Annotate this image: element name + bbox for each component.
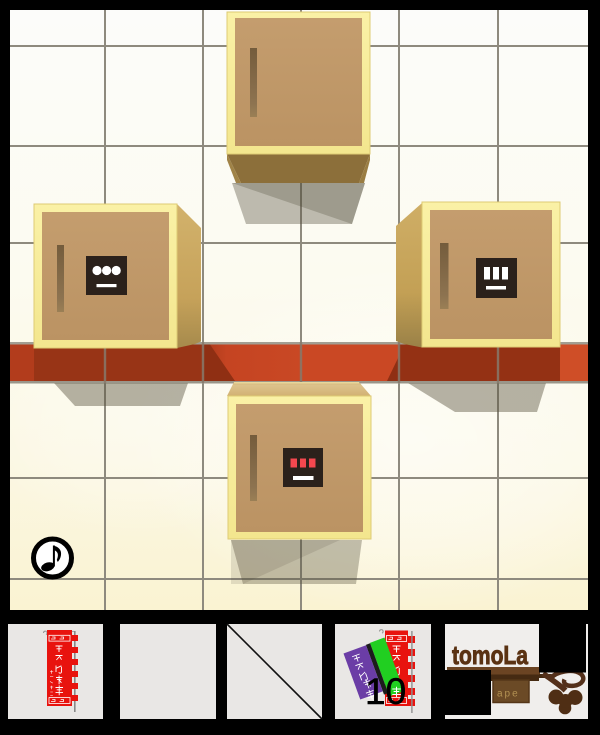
- svg-text:tomoLa: tomoLa: [452, 640, 528, 670]
- svg-text:ape: ape: [497, 689, 520, 700]
- svg-text:10: 10: [365, 671, 406, 712]
